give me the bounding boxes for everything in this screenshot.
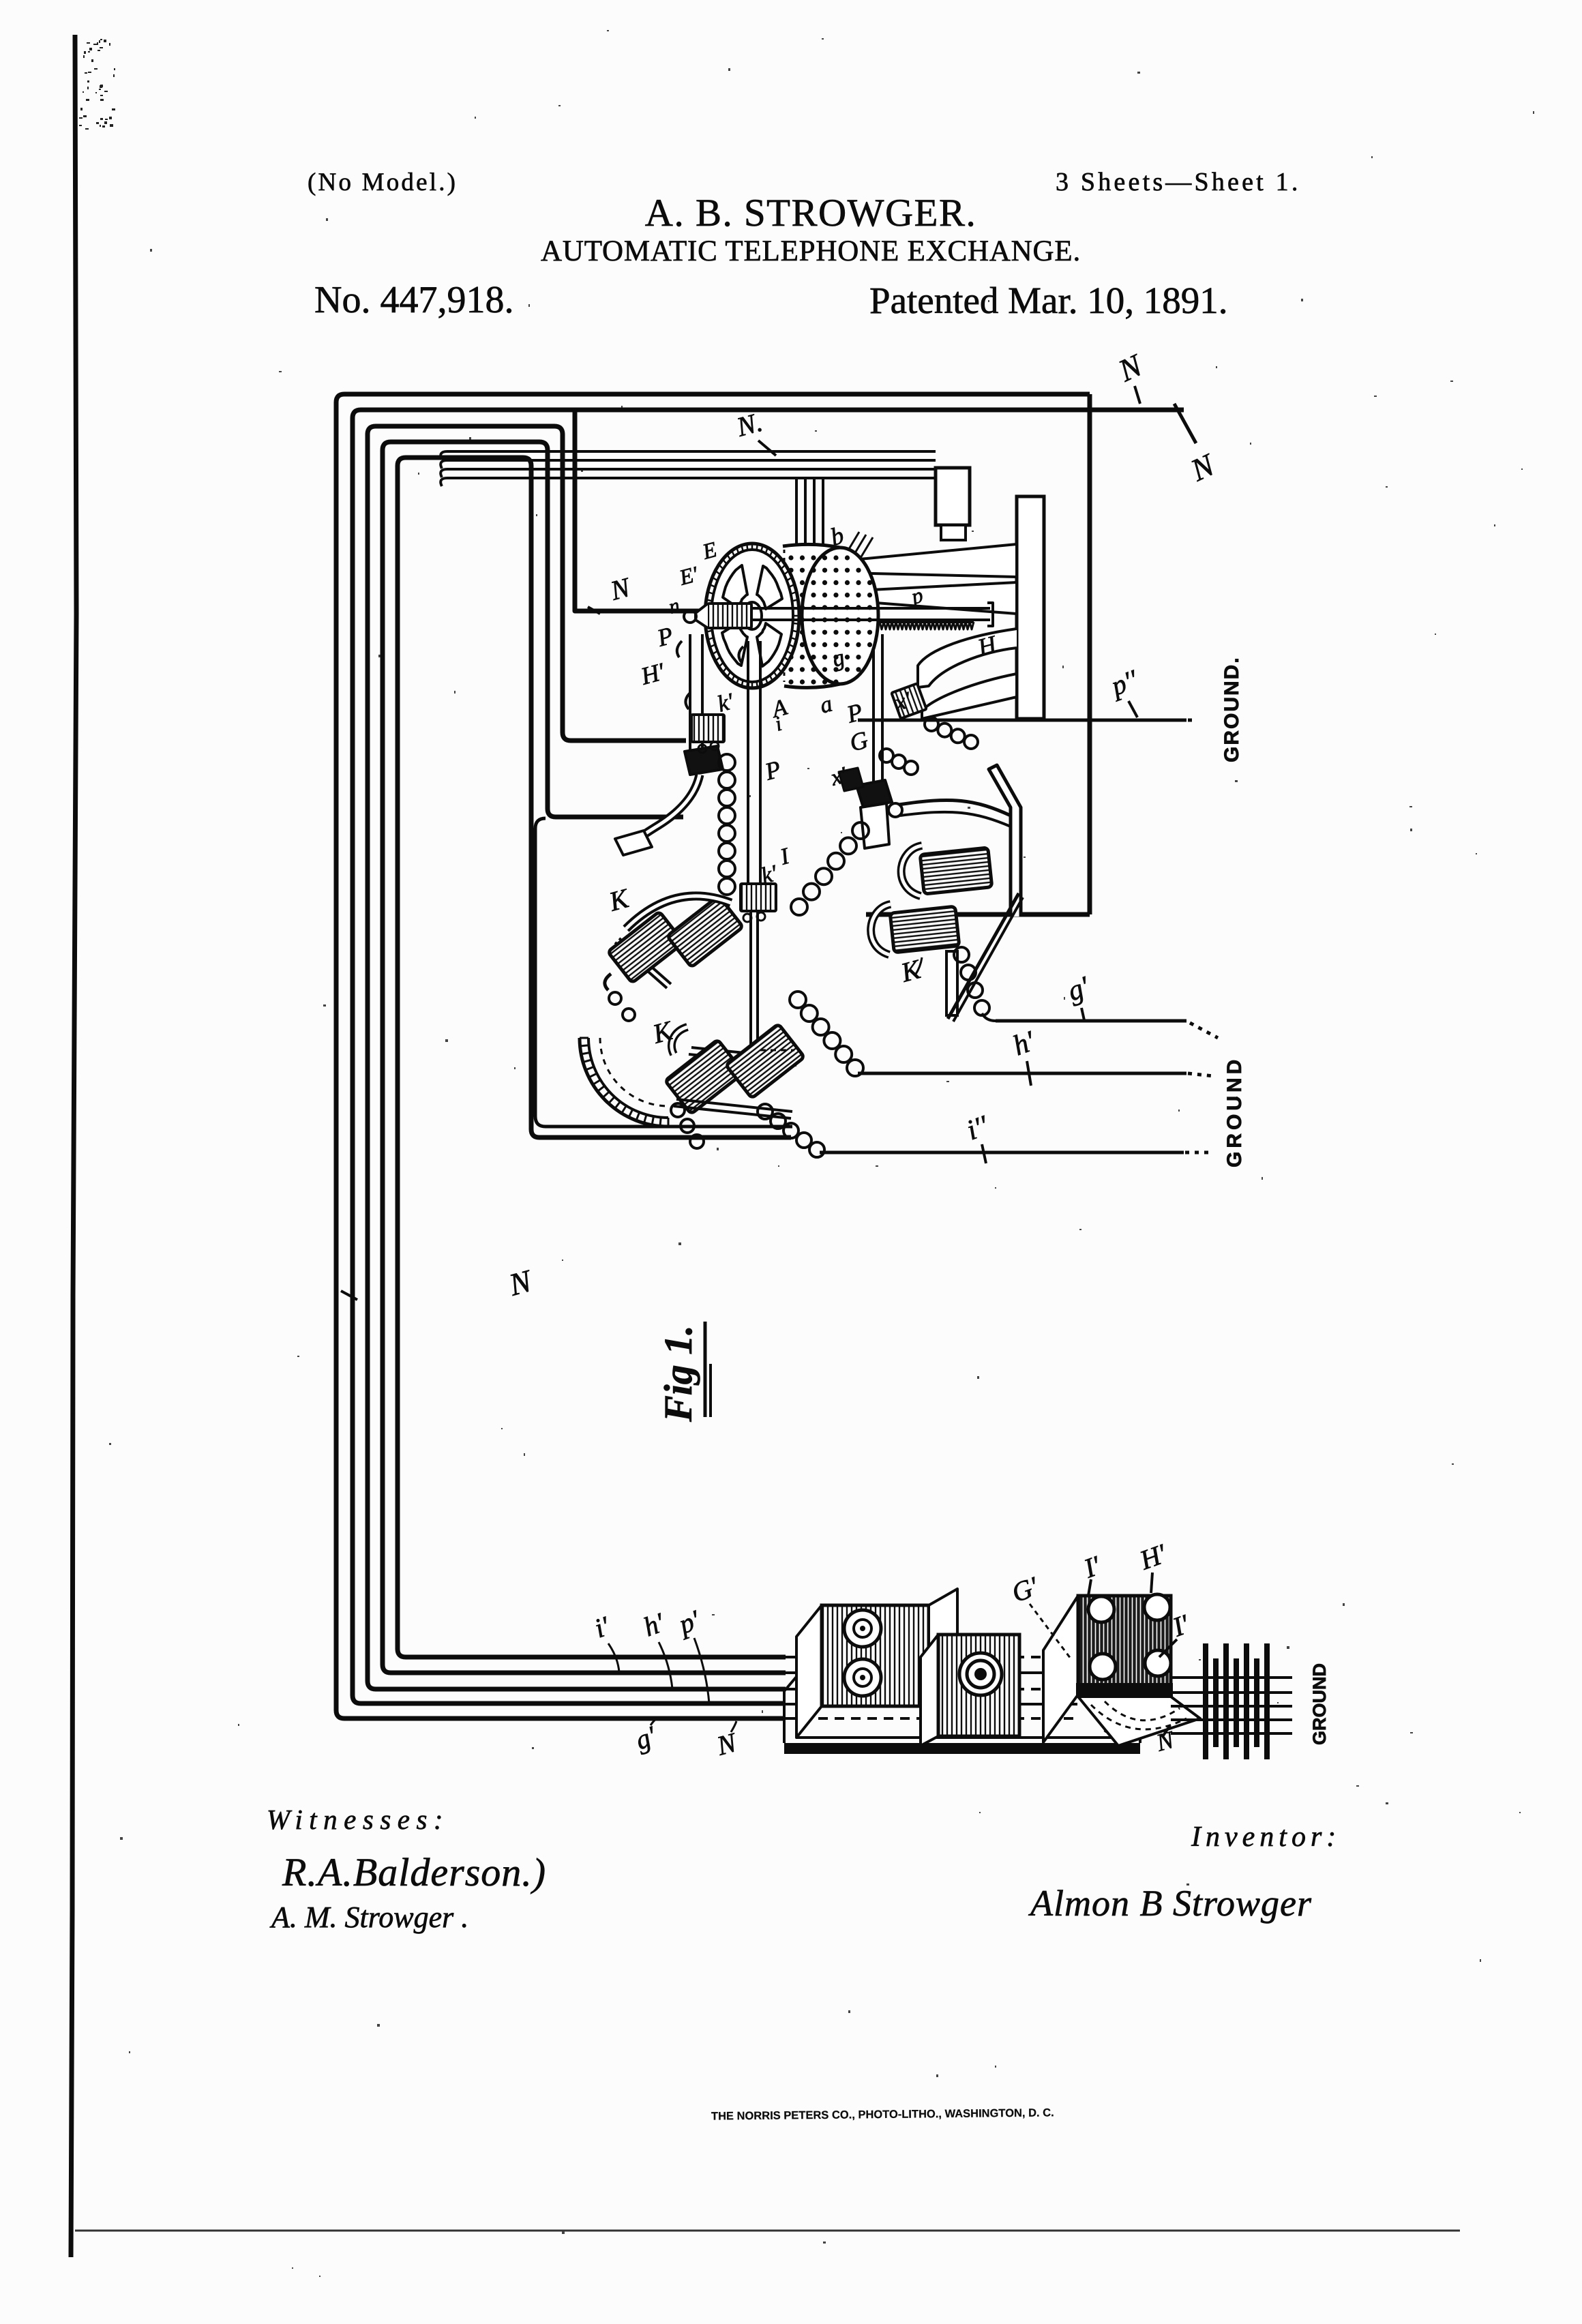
svg-text:H′: H′ (638, 657, 668, 690)
svg-text:K: K (606, 882, 633, 917)
svg-text:P: P (844, 698, 866, 728)
svg-text:N: N (1113, 347, 1148, 389)
svg-text:I: I (777, 844, 793, 870)
svg-text:E′: E′ (676, 561, 702, 590)
svg-text:N: N (607, 571, 635, 606)
svg-text:p′′: p′′ (1105, 664, 1143, 702)
svg-text:H′: H′ (1135, 1538, 1171, 1576)
svg-text:K: K (897, 953, 925, 988)
svg-text:p′: p′ (673, 1604, 704, 1641)
svg-text:h′: h′ (640, 1607, 670, 1643)
svg-text:n: n (666, 594, 682, 619)
svg-text:N: N (505, 1263, 536, 1302)
svg-text:i′′: i′′ (963, 1110, 994, 1147)
svg-text:G: G (847, 726, 871, 756)
svg-text:h′: h′ (1009, 1026, 1040, 1062)
svg-text:g′: g′ (631, 1720, 661, 1756)
svg-text:P: P (654, 621, 676, 652)
svg-text:N: N (713, 1727, 741, 1761)
svg-text:N: N (1185, 447, 1221, 488)
svg-text:E: E (700, 537, 720, 564)
svg-text:P: P (762, 755, 784, 786)
svg-text:a: a (817, 691, 835, 719)
svg-text:i′: i′ (591, 1610, 614, 1644)
svg-text:G′: G′ (1008, 1570, 1043, 1609)
svg-text:GROUND.: GROUND. (1221, 656, 1243, 762)
svg-text:N: N (1153, 1725, 1178, 1757)
svg-text:GROUND: GROUND (1223, 1056, 1246, 1167)
svg-text:g′: g′ (1064, 971, 1094, 1008)
svg-text:x′: x′ (828, 762, 850, 791)
svg-text:k′: k′ (715, 689, 736, 717)
svg-text:I′: I′ (1079, 1549, 1105, 1584)
svg-text:Fig 1.: Fig 1. (656, 1325, 700, 1422)
svg-text:GROUND: GROUND (1309, 1663, 1330, 1745)
